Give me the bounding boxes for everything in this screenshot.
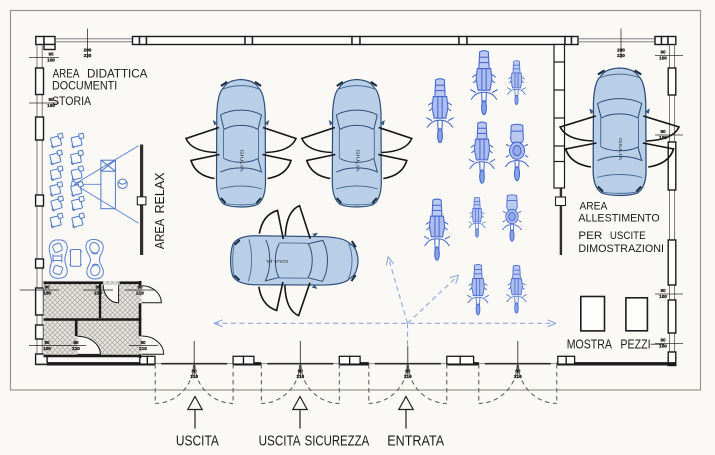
svg-text:100: 100 [659,56,667,61]
svg-text:90: 90 [44,285,50,290]
svg-text:100: 100 [47,58,55,63]
svg-text:AREA: AREA [580,201,609,213]
svg-text:100: 100 [659,294,667,299]
svg-text:100: 100 [43,346,51,351]
svg-text:MOSTRA: MOSTRA [567,337,613,351]
svg-text:210: 210 [139,346,147,351]
svg-text:ALLESTIMENTO: ALLESTIMENTO [578,213,659,225]
svg-text:90: 90 [660,338,666,343]
svg-text:USCITA: USCITA [259,434,301,450]
svg-text:90: 90 [44,340,50,345]
svg-text:210: 210 [136,291,144,296]
svg-text:ENTRATA: ENTRATA [387,434,444,450]
svg-text:210: 210 [94,291,102,296]
svg-text:USCITA: USCITA [176,434,219,450]
svg-text:PEZZI: PEZZI [620,337,650,351]
svg-text:DIMOSTRAZIONI: DIMOSTRAZIONI [578,243,664,255]
svg-text:210: 210 [190,374,198,379]
svg-text:80: 80 [73,340,79,345]
svg-text:90: 90 [660,129,666,134]
svg-text:SICUREZZA: SICUREZZA [305,434,370,450]
svg-text:80: 80 [192,369,198,374]
svg-text:AREA: AREA [153,218,167,249]
svg-text:STORIA: STORIA [52,96,91,108]
svg-text:USCITE: USCITE [610,230,646,242]
svg-text:90: 90 [48,52,54,57]
svg-text:200: 200 [617,48,625,53]
svg-text:200: 200 [84,48,92,53]
svg-text:80: 80 [405,369,411,374]
svg-text:210: 210 [72,346,80,351]
svg-text:210: 210 [296,374,304,379]
svg-text:80: 80 [140,340,146,345]
svg-text:DIDATTICA: DIDATTICA [87,69,148,81]
svg-text:220: 220 [84,53,92,58]
svg-text:80: 80 [137,285,143,290]
svg-text:90: 90 [660,50,666,55]
svg-text:90: 90 [660,288,666,293]
svg-text:100: 100 [43,291,51,296]
svg-text:DOCUMENTI: DOCUMENTI [52,81,117,93]
svg-text:RELAX: RELAX [153,172,167,214]
svg-text:PER: PER [578,230,602,242]
svg-text:80: 80 [515,369,521,374]
svg-text:80: 80 [298,369,304,374]
svg-text:210: 210 [404,374,412,379]
svg-text:210: 210 [514,374,522,379]
svg-text:80: 80 [95,285,101,290]
svg-text:AREA: AREA [53,69,80,81]
svg-text:220: 220 [617,53,625,58]
